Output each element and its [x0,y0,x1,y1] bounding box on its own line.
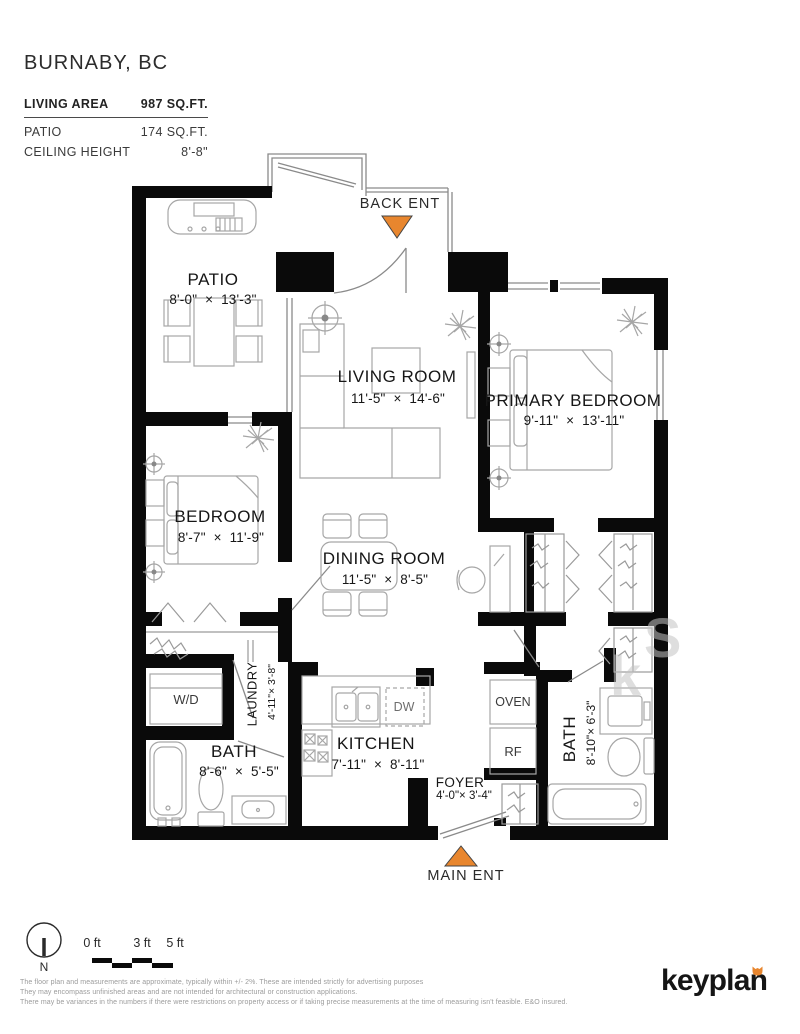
room-label-primary: PRIMARY BEDROOM [485,391,662,411]
living-furniture [300,301,476,478]
room-dims-laundry: 4'-11"× 3'-8" [266,664,278,720]
floorplan-page: BURNABY, BC LIVING AREA 987 SQ.FT. PATIO… [0,0,800,1034]
room-label-foyer: FOYER [436,775,485,790]
ceiling-light-icon [143,453,165,475]
back-door-arc [334,248,406,293]
north-label: N [40,960,49,974]
disclaimer-line-2: They may encompass unfinished areas and … [20,989,357,996]
room-label-bath2: BATH [560,716,580,762]
bbq-grill [168,200,256,234]
scale-bar [92,958,173,968]
main-entrance-arrow [445,846,477,866]
plant-icon [617,306,648,336]
patio-glass-wall [287,298,292,412]
tv-console [467,352,475,418]
toilet [608,738,640,776]
back-entrance-label: BACK ENT [360,196,441,212]
nightstand [146,480,164,506]
north-compass-icon [27,923,61,957]
stove-burners [304,734,328,762]
watermark-letter: k [610,648,641,704]
room-dims-kitchen: 7'-11" × 8'-11" [331,757,424,772]
room-label-patio: PATIO [188,270,239,290]
scale-tick-0ft: 0 ft [83,936,100,950]
washer-dryer-label: W/D [173,692,198,707]
room-dims-living: 11'-5" × 14'-6" [351,391,445,406]
oven-label: OVEN [495,695,530,709]
room-dims-bath1: 8'-6" × 5'-5" [199,764,279,779]
plant-icon [243,422,274,452]
ceiling-light-icon [143,561,165,583]
ceiling-light-icon [487,332,511,356]
bathtub [548,784,646,824]
room-label-kitchen: KITCHEN [337,734,415,754]
bedroom-furniture [143,422,274,583]
main-entrance-label: MAIN ENT [427,868,504,884]
desk-chair [459,567,485,593]
room-label-laundry: LAUNDRY [245,662,260,727]
room-label-bath1: BATH [211,742,257,762]
desk [490,546,510,612]
scale-tick-5ft: 5 ft [166,936,183,950]
room-label-bedroom: BEDROOM [174,507,265,527]
room-dims-foyer: 4'-0"× 3'-4" [436,790,492,802]
nightstand [146,520,164,546]
bathtub [150,742,186,820]
plant-icon [445,310,476,340]
refrigerator-label: RF [504,744,521,759]
scale-tick-3ft: 3 ft [133,936,150,950]
back-gate-door-leaf [278,163,356,187]
floorplan-drawing [0,0,800,1034]
room-dims-bath2: 8'-10"× 6'-3" [584,701,598,766]
room-dims-primary: 9'-11" × 13'-11" [524,413,625,428]
disclaimer-line-3: There may be variances in the numbers if… [20,999,568,1006]
watermark-letter: S [644,610,681,666]
patio-window [228,417,252,423]
back-entrance-arrow [382,216,412,238]
bath2-door-leaf [568,661,603,682]
room-dims-patio: 8'-0" × 13'-3" [169,292,256,307]
room-dims-dining: 11'-5" × 8'-5" [342,572,428,587]
disclaimer-line-1: The floor plan and measurements are appr… [20,979,423,986]
room-dims-bedroom: 8'-7" × 11'-9" [178,530,264,545]
nightstand [488,420,510,446]
room-label-dining: DINING ROOM [323,549,446,569]
room-label-living: LIVING ROOM [338,367,457,387]
dishwasher-label: DW [394,700,415,714]
ceiling-light-icon [487,466,511,490]
patio-table [194,298,234,366]
